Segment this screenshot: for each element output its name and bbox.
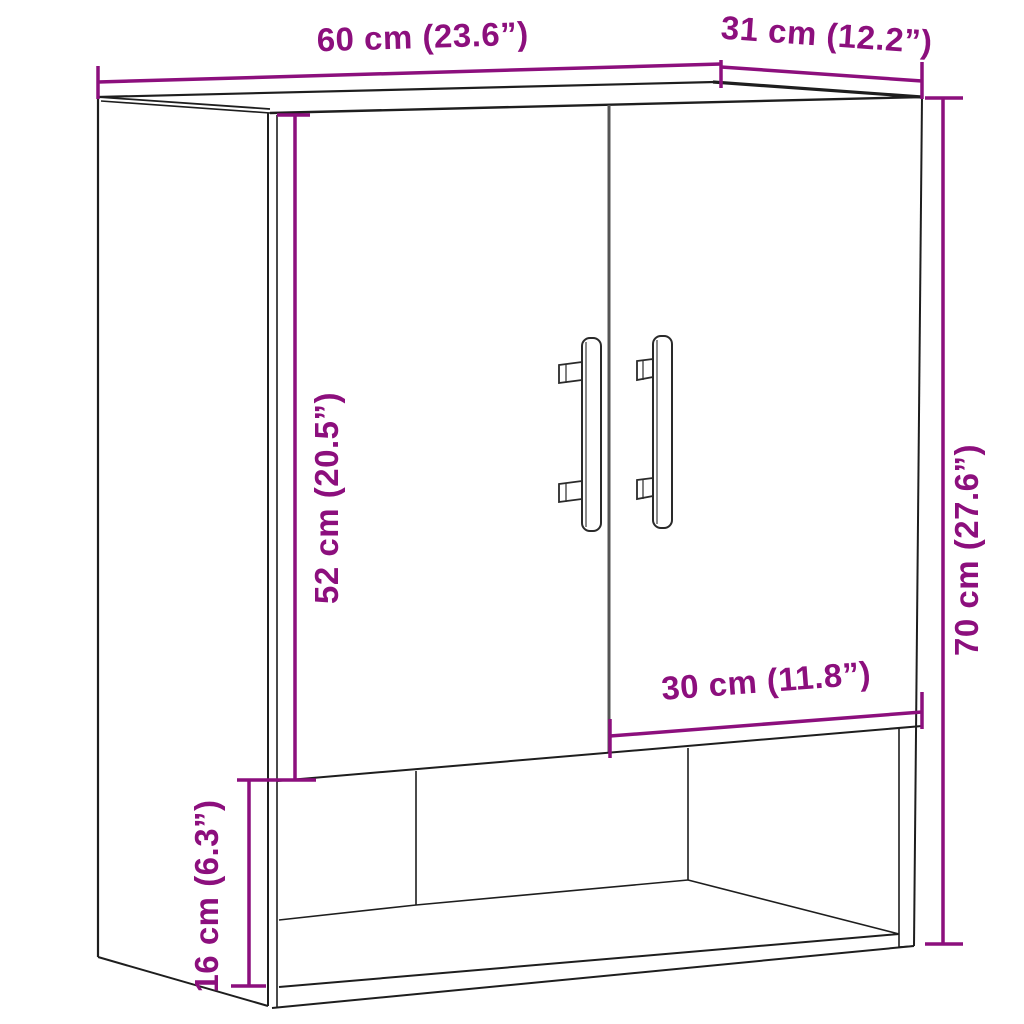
bottom-right-corner-edge <box>899 946 914 947</box>
depth-dimension-line <box>721 67 922 81</box>
dimension-shelf-height <box>231 781 266 986</box>
width-dimension-label: 60 cm (23.6”) <box>316 15 529 59</box>
niche-floor-left-edge <box>279 905 416 920</box>
dimension-lines <box>98 60 963 986</box>
niche-floor-back-edge <box>416 880 688 905</box>
product-dimension-diagram: 60 cm (23.6”) 31 cm (12.2”) 52 cm (20.5”… <box>0 0 1024 1024</box>
width-dimension-line <box>98 64 721 82</box>
front-right-vertical-outer <box>914 97 922 946</box>
top-front-edge <box>270 97 922 113</box>
door-width-dimension-line <box>610 712 922 736</box>
shelf-height-dimension-label: 16 cm (6.3”) <box>188 799 225 992</box>
left-handle-bar <box>582 338 601 531</box>
door-height-dimension-label: 52 cm (20.5”) <box>308 392 345 604</box>
cabinet-dimension-drawing: 60 cm (23.6”) 31 cm (12.2”) 52 cm (20.5”… <box>0 0 1024 1024</box>
door-width-dimension-label: 30 cm (11.8”) <box>660 654 872 707</box>
niche-floor-front-edge <box>279 934 899 987</box>
left-panel-bottom-edge <box>98 957 268 1006</box>
top-right-edge <box>713 82 922 97</box>
right-handle-bar <box>653 336 672 528</box>
height-dimension-label: 70 cm (27.6”) <box>948 444 985 656</box>
right-handle-top-post <box>637 359 653 380</box>
doors-bottom-edge <box>277 726 922 781</box>
bottom-front-edge <box>272 946 914 1008</box>
left-handle-bottom-post <box>559 481 582 502</box>
right-handle-bottom-post <box>637 478 653 499</box>
door-handles <box>559 336 672 531</box>
depth-dimension-label: 31 cm (12.2”) <box>720 9 934 61</box>
right-door-handle <box>637 336 672 528</box>
top-back-edge <box>98 82 715 97</box>
dimension-width <box>98 60 721 99</box>
left-door-handle <box>559 338 601 531</box>
left-handle-top-post <box>559 362 582 383</box>
niche-floor-right-edge <box>688 880 899 934</box>
